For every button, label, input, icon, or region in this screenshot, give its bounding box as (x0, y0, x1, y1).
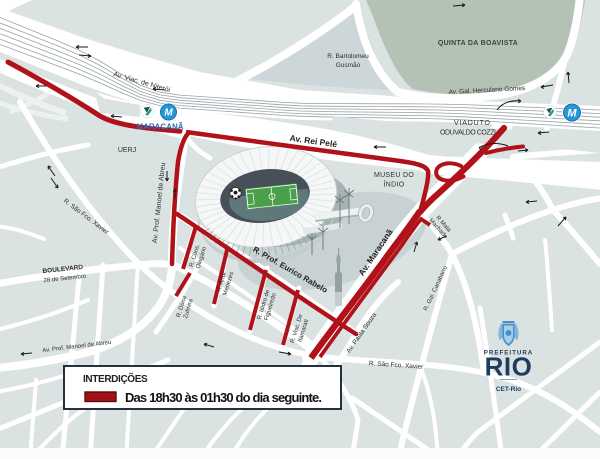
svg-text:MUSEU DO: MUSEU DO (374, 172, 414, 179)
svg-text:M: M (567, 107, 577, 119)
svg-text:RIO: RIO (485, 352, 533, 382)
svg-text:INTERDIÇÕES: INTERDIÇÕES (83, 372, 148, 385)
svg-text:UERJ: UERJ (118, 147, 136, 154)
svg-text:ODUVALDO COZZI: ODUVALDO COZZI (440, 130, 496, 137)
svg-text:ÍNDIO: ÍNDIO (384, 180, 405, 189)
svg-text:Das 18h30 às 01h30 do dia segu: Das 18h30 às 01h30 do dia seguinte. (125, 390, 322, 405)
svg-text:MARACANÃ: MARACANÃ (136, 123, 183, 132)
svg-text:CET-Rio: CET-Rio (496, 386, 521, 393)
svg-text:QUINTA DA BOAVISTA: QUINTA DA BOAVISTA (438, 40, 518, 47)
svg-text:VIADUTO: VIADUTO (454, 120, 491, 127)
svg-text:M: M (164, 108, 173, 119)
svg-text:Gusmão: Gusmão (336, 62, 361, 69)
svg-text:R. Bartolomeu: R. Bartolomeu (327, 53, 369, 60)
